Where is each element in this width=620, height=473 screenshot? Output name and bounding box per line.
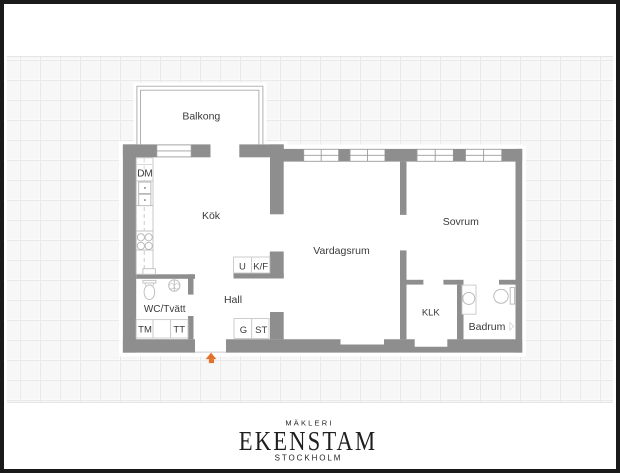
svg-text:MÄKLERI: MÄKLERI [285,418,333,427]
svg-text:EKENSTAM: EKENSTAM [239,427,377,456]
svg-text:STOCKHOLM: STOCKHOLM [275,454,343,463]
